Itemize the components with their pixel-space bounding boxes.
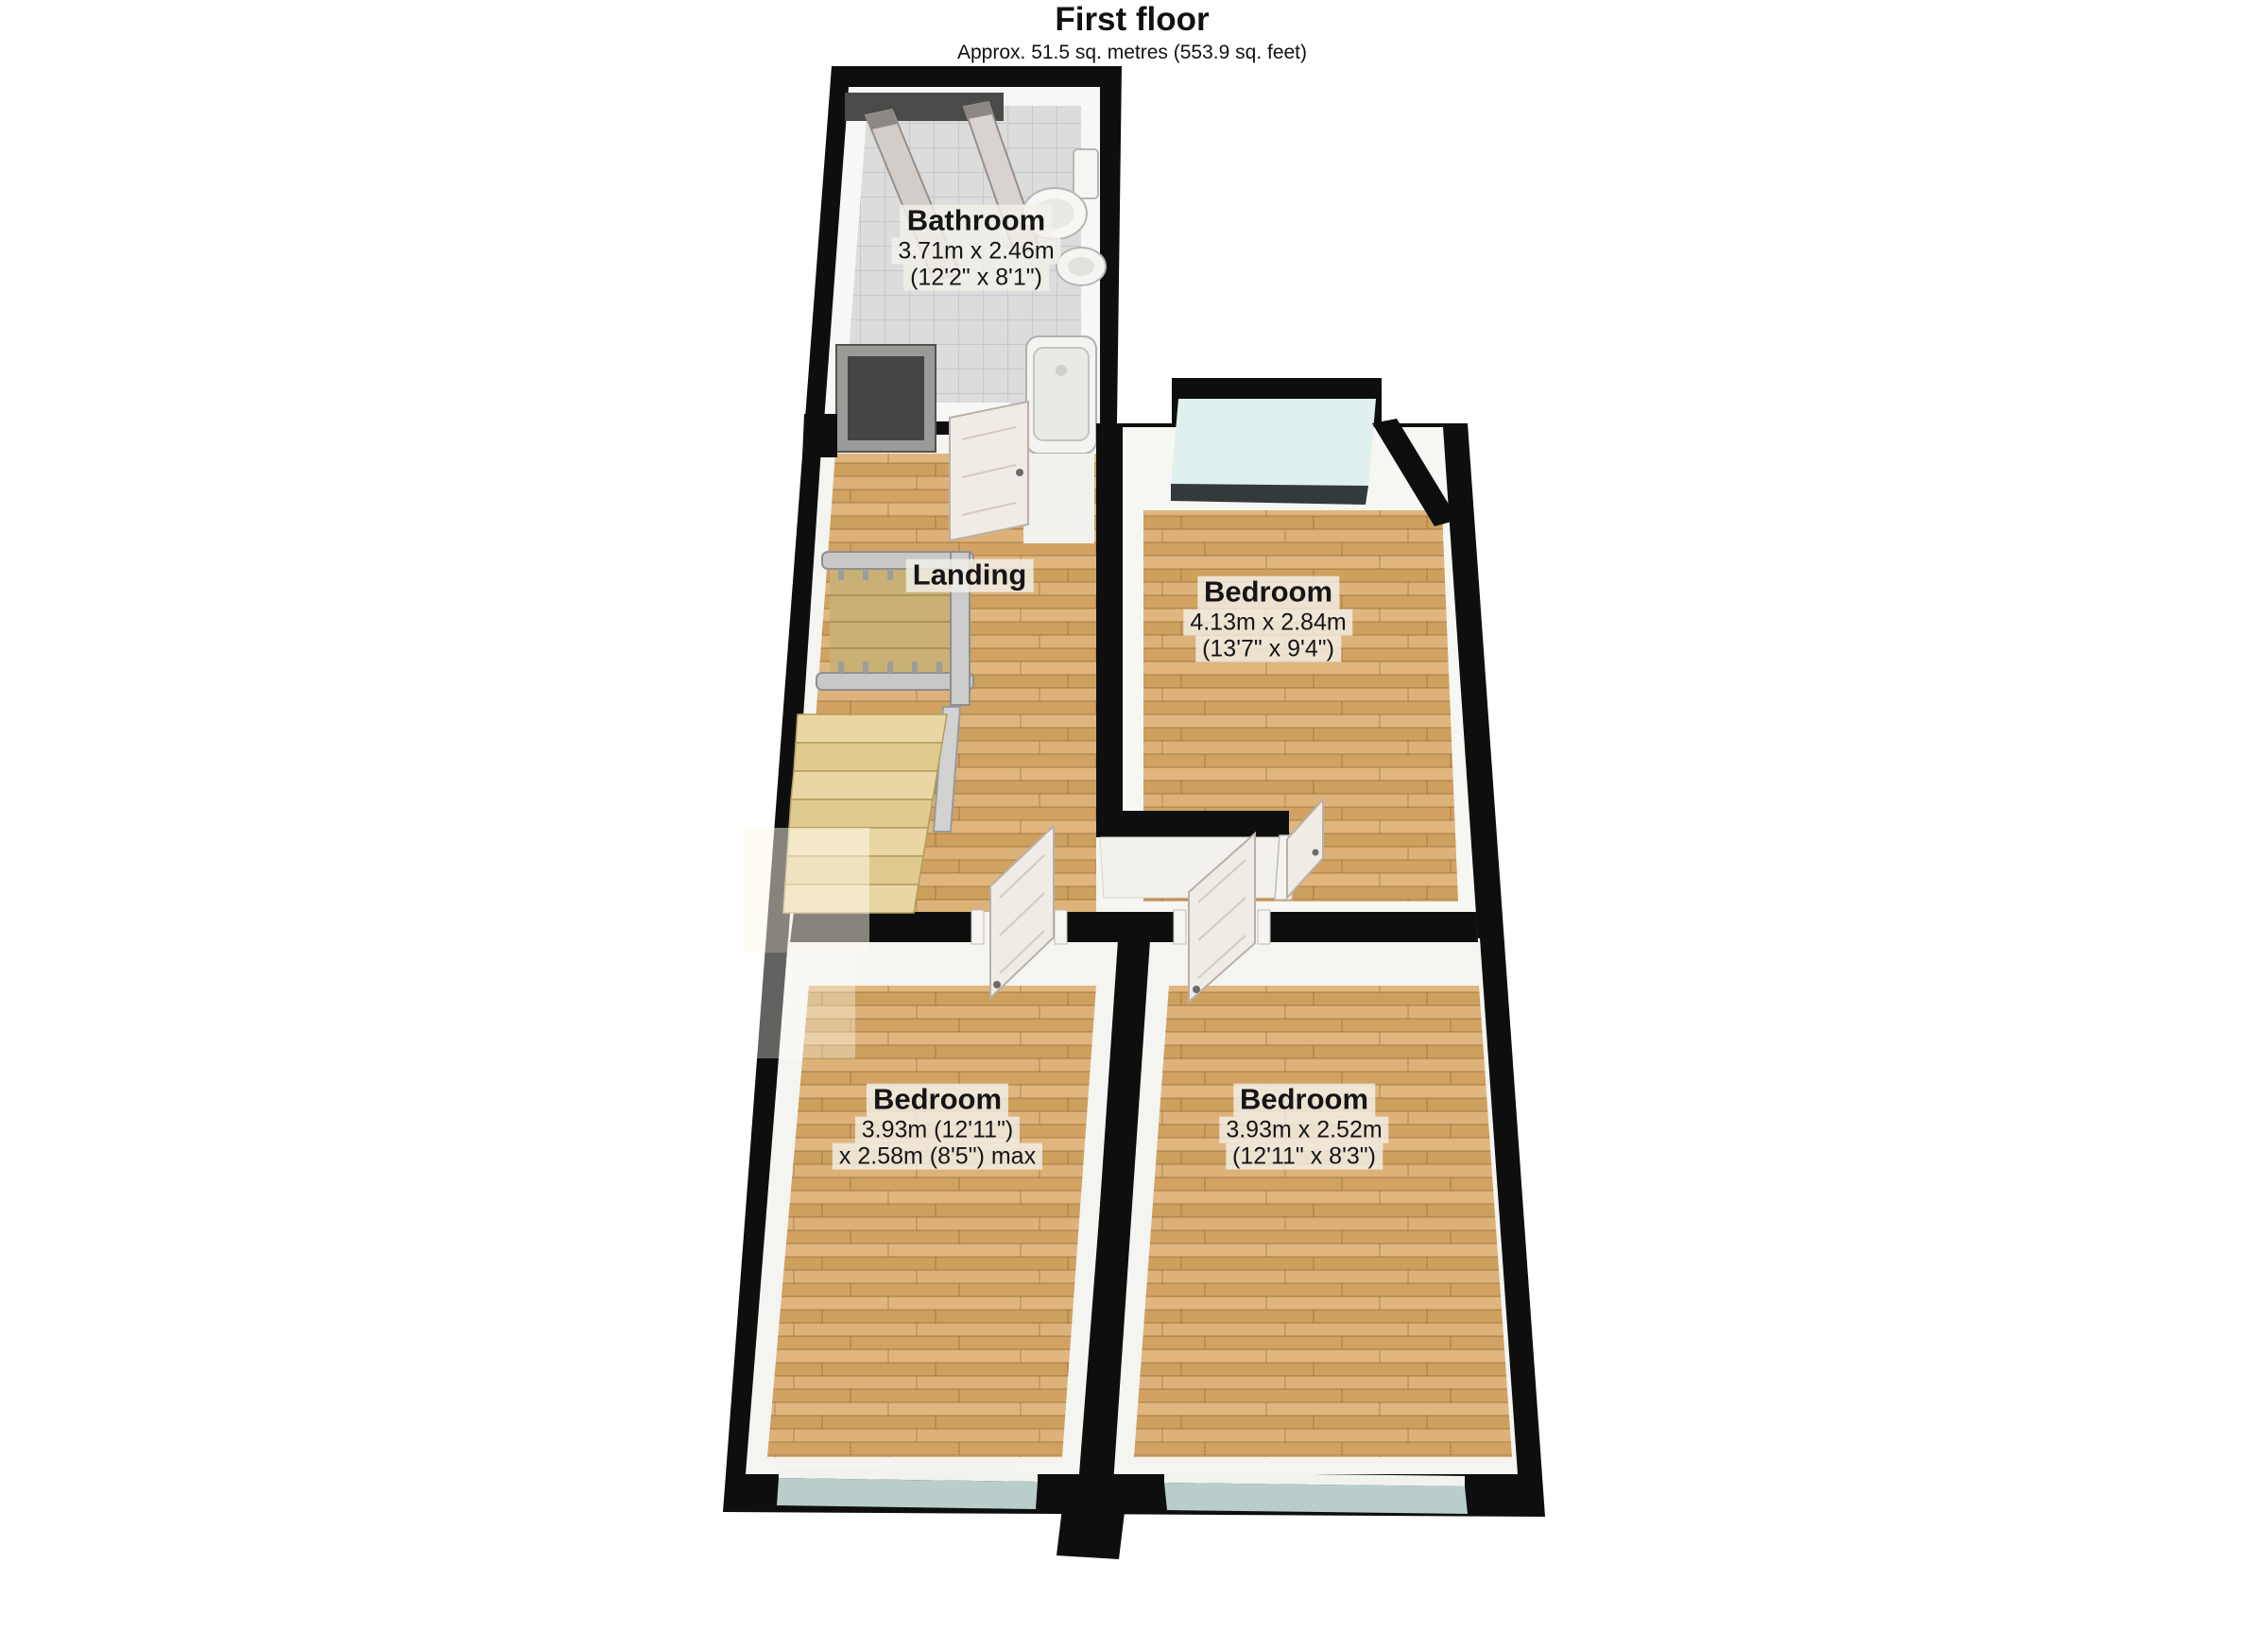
bedroom1-south-jog-wall [1096, 811, 1289, 837]
window-glass [1164, 1483, 1468, 1514]
basin-bowl [1068, 257, 1094, 276]
bedroom-top-name: Bedroom [1197, 576, 1339, 610]
stair-tread [796, 714, 947, 743]
bedroom-bottom-right-name: Bedroom [1233, 1084, 1375, 1117]
door-jamb [1055, 910, 1067, 944]
stair-light-patch [743, 828, 869, 953]
bedroom-top-dims-metric: 4.13m x 2.84m [1183, 609, 1352, 635]
bathtub-drain [1056, 365, 1067, 376]
cross-wall [1057, 912, 1184, 942]
cupboard-interior [848, 356, 924, 440]
bay-window-glass [1171, 399, 1376, 488]
bathtub-basin [1034, 348, 1089, 440]
bedroom-bottom-left-label: Bedroom 3.93m (12'11") x 2.58m (8'5") ma… [833, 1084, 1042, 1170]
door-jamb [971, 910, 984, 944]
landing-name: Landing [906, 559, 1034, 593]
bedroom-top-dims-imperial: (13'7" x 9'4") [1195, 635, 1341, 661]
bathroom-wall [802, 414, 837, 457]
toilet-cistern [1074, 149, 1098, 198]
landing-bedroom-wall [1096, 423, 1123, 824]
landing-label: Landing [906, 559, 1034, 593]
bedroom-bottom-right-dims-imperial: (12'11" x 8'3") [1226, 1142, 1383, 1169]
bedroom3-wood-floor [1134, 986, 1512, 1457]
stair-tread [794, 743, 942, 771]
door-handle [1016, 469, 1023, 476]
bathroom-name: Bathroom [901, 205, 1052, 238]
bedroom-bottom-left-dims1: 3.93m (12'11") [855, 1116, 1021, 1142]
stair-tread [791, 771, 937, 799]
bathroom-label: Bathroom 3.71m x 2.46m (12'2" x 8'1") [891, 205, 1060, 291]
bedroom-bottom-left-name: Bedroom [867, 1084, 1008, 1117]
cross-wall [1260, 912, 1478, 942]
bathroom-dims-imperial: (12'2" x 8'1") [903, 264, 1049, 290]
bedroom-bottom-right-label: Bedroom 3.93m x 2.52m (12'11" x 8'3") [1219, 1084, 1388, 1170]
door-jamb [1258, 910, 1270, 944]
party-wall-stub [1057, 1508, 1125, 1559]
floorplan-page: First floor Approx. 51.5 sq. metres (553… [0, 0, 2268, 1649]
door-handle [1313, 850, 1319, 856]
bedroom-bottom-left-dims2: x 2.58m (8'5") max [833, 1142, 1042, 1169]
bedroom-bottom-right-dims-metric: 3.93m x 2.52m [1219, 1116, 1388, 1142]
window-glass [777, 1478, 1038, 1509]
stair-tread [789, 799, 933, 828]
door-handle [1193, 986, 1200, 993]
door-handle [993, 981, 1001, 988]
bathtub-pedestal [1023, 454, 1094, 543]
bedroom2-light-patch [748, 953, 855, 1058]
door-jamb [1174, 910, 1186, 944]
bedroom-top-label: Bedroom 4.13m x 2.84m (13'7" x 9'4") [1183, 576, 1352, 662]
light-overlays [743, 828, 869, 1058]
bathroom-dims-metric: 3.71m x 2.46m [891, 237, 1060, 264]
floorplan-svg [0, 0, 2268, 1649]
